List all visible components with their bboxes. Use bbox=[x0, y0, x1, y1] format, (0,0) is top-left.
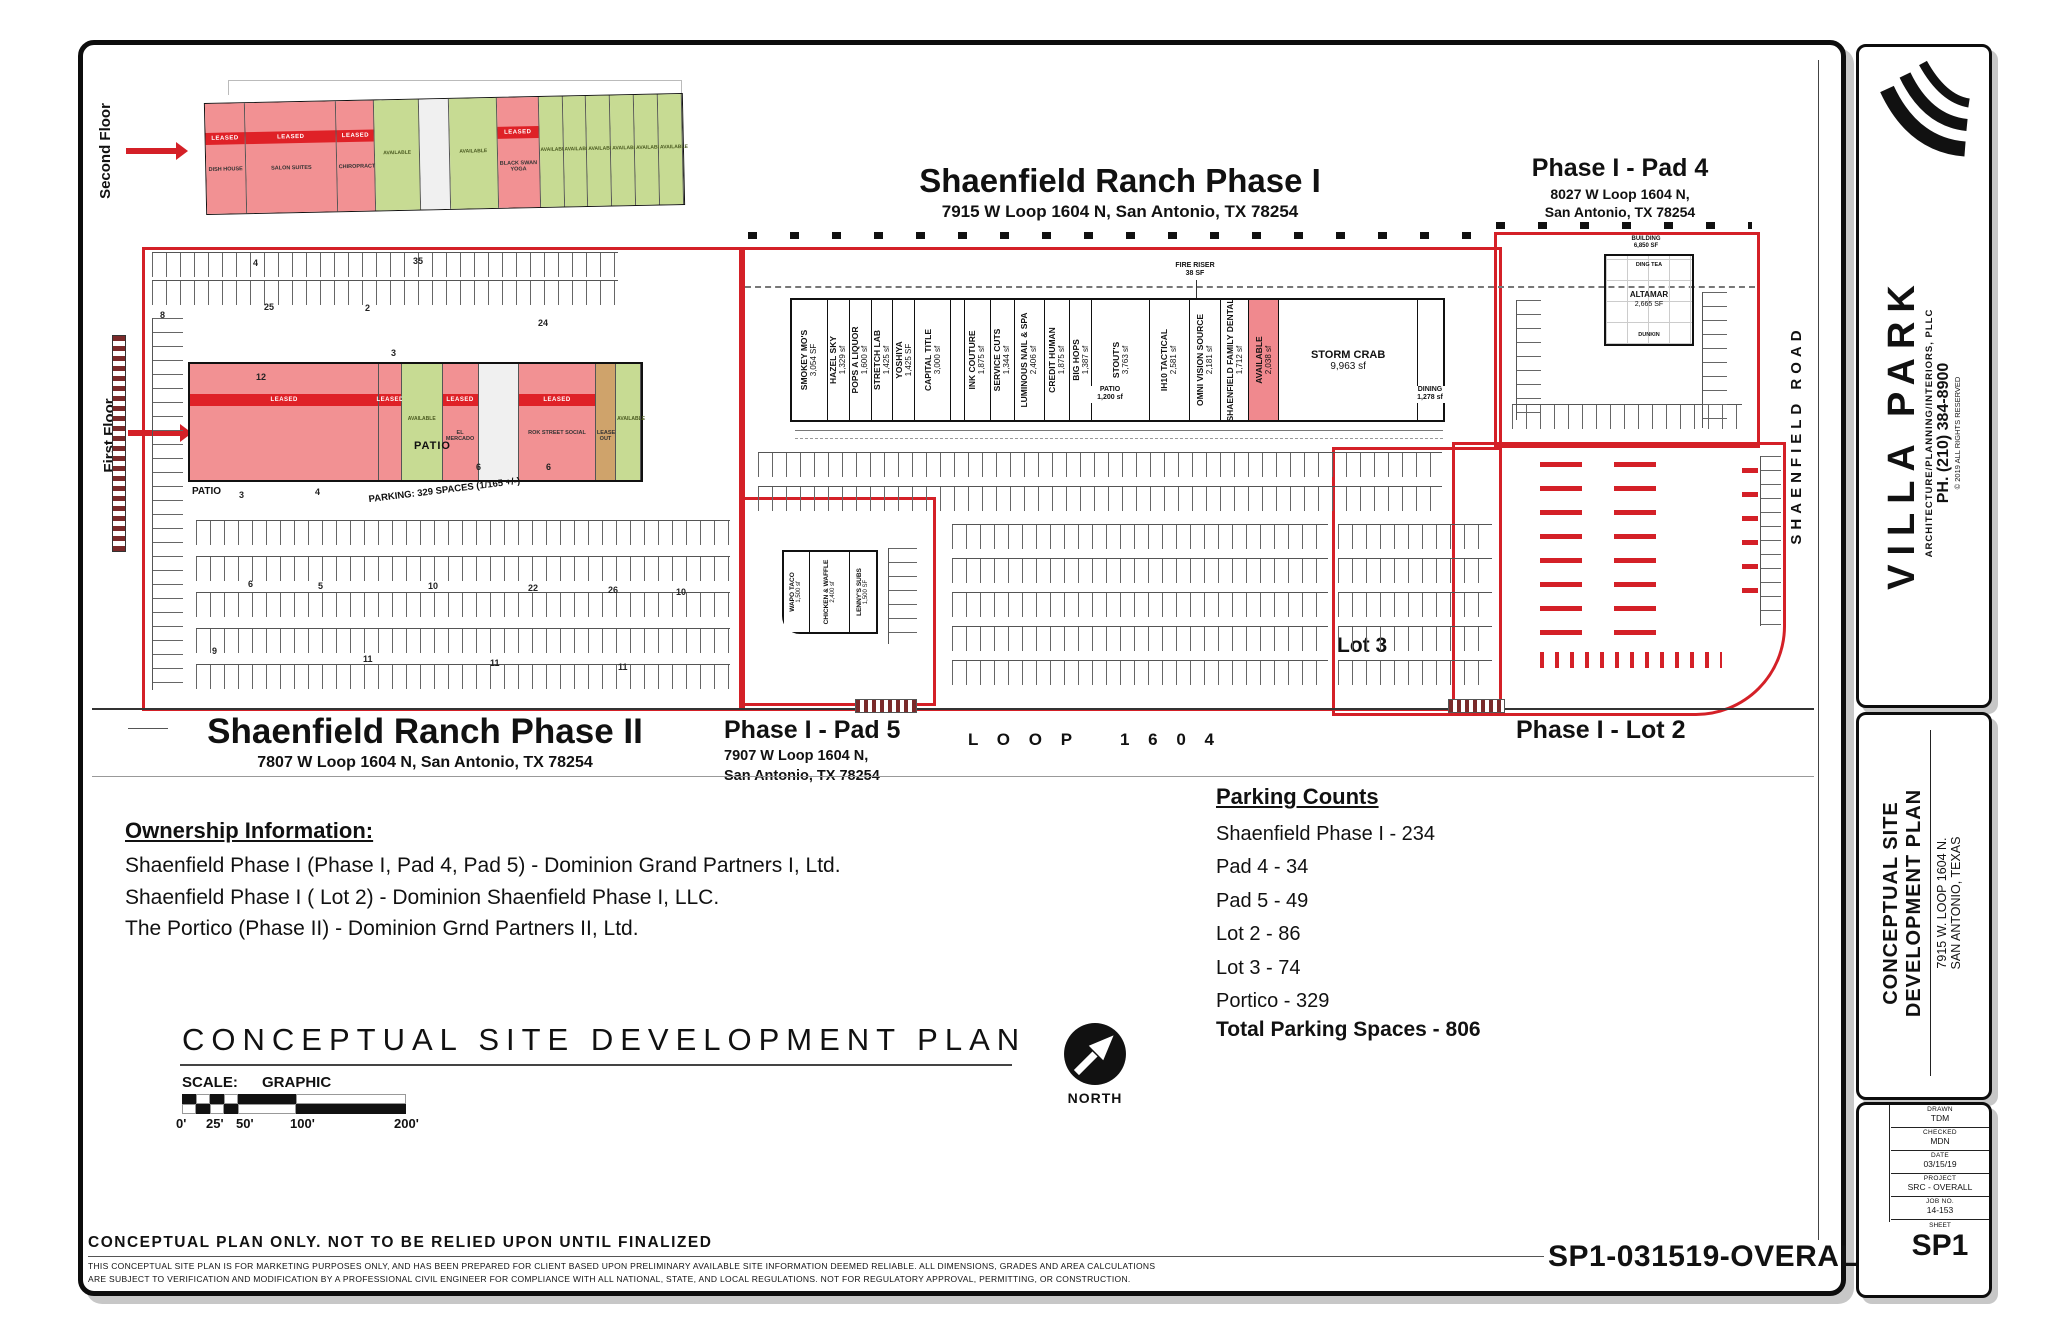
unit-name: CHIROPRACTOR bbox=[339, 164, 374, 170]
tenant-unit: WAPO TACO1,500 sf bbox=[784, 552, 810, 632]
sheet-label: SHEET bbox=[1891, 1220, 1989, 1229]
pad4-tick-row bbox=[1496, 222, 1752, 229]
tenant-sf: 1,425 SF bbox=[904, 341, 913, 378]
unit-name: AVAILABLE bbox=[588, 145, 609, 151]
parking-row bbox=[952, 626, 1328, 651]
tenant-unit: HAZEL SKY1,329 sf bbox=[828, 300, 850, 420]
tenant-unit: POPS A LIQUOR1,600 sf bbox=[850, 300, 872, 420]
tenant-sf: 1,500 sf bbox=[797, 572, 804, 612]
unit-name: SALON SUITES bbox=[247, 165, 336, 173]
project-divider bbox=[1930, 730, 1931, 1076]
parking-row-number: 5 bbox=[318, 581, 323, 591]
leased-unit: LEASEDSALON SUITES bbox=[245, 101, 339, 213]
parking-row bbox=[1338, 592, 1492, 617]
north-label: NORTH bbox=[1053, 1090, 1137, 1106]
tenant-unit: IH10 TACTICAL2,581 sf bbox=[1150, 300, 1190, 420]
parking-row-number: 3 bbox=[391, 348, 396, 358]
parking-row bbox=[1338, 626, 1492, 651]
parking-row-number: 6 bbox=[476, 462, 481, 472]
phase2-heading: Shaenfield Ranch Phase II bbox=[165, 712, 685, 752]
parking-column bbox=[1760, 456, 1781, 626]
tenant-unit-label: AVAILABLE2,038 sf bbox=[1254, 336, 1272, 383]
plan-title-underline bbox=[180, 1064, 1012, 1066]
unit-name: AVAILABLE bbox=[451, 147, 496, 154]
tenant-name: AVAILABLE bbox=[1254, 336, 1264, 383]
tenant-unit-label: LENNY'S SUBS1,500 SF bbox=[856, 568, 870, 616]
info-row: DRAWNTDM bbox=[1891, 1105, 1989, 1128]
tenant-name: CAPITAL TITLE bbox=[923, 329, 933, 391]
pad4-address-2: San Antonio, TX 78254 bbox=[1480, 204, 1760, 220]
firm-name: VILLA PARK bbox=[1881, 167, 1924, 699]
unit-name: AVAILABLE bbox=[612, 145, 633, 151]
tenant-unit-label: SERVICE CUTS1,344 sf bbox=[993, 329, 1011, 392]
fire-riser-label: FIRE RISER38 SF bbox=[1150, 262, 1240, 279]
second-floor-arrow bbox=[126, 148, 176, 154]
info-row: CHECKEDMDN bbox=[1891, 1128, 1989, 1151]
tenant-sf: 1,425 sf bbox=[882, 330, 891, 390]
tenant-unit: SERVICE CUTS1,344 sf bbox=[991, 300, 1015, 420]
parking-row-number: 4 bbox=[315, 487, 320, 497]
pad4-building-outline: DING TEA ALTAMAR 2,665 SF DUNKIN bbox=[1604, 254, 1694, 346]
crosswalk-2 bbox=[1448, 699, 1505, 713]
pad4-unit-top: DING TEA bbox=[1606, 262, 1692, 268]
project-title-2: DEVELOPMENT PLAN bbox=[1903, 789, 1926, 1017]
parking-row bbox=[196, 556, 730, 581]
parking-row bbox=[196, 592, 730, 617]
parking-counts-title: Parking Counts bbox=[1216, 784, 1379, 810]
site-plan-sheet: LEASEDDISH HOUSELEASEDSALON SUITESLEASED… bbox=[0, 0, 2048, 1325]
info-row-value: TDM bbox=[1891, 1113, 1989, 1123]
loop-road-near-edge bbox=[92, 708, 1814, 710]
street-median-hatch bbox=[112, 335, 126, 552]
leased-band: LEASED bbox=[443, 394, 478, 406]
tenant-unit-label: SMOKEY MO'S3,054 SF bbox=[800, 330, 818, 390]
info-row-label: CHECKED bbox=[1891, 1129, 1989, 1136]
tenant-name: STORM CRAB bbox=[1311, 349, 1385, 361]
second-floor-plan: LEASEDDISH HOUSELEASEDSALON SUITESLEASED… bbox=[204, 93, 685, 215]
leased-unit: LEASEDDISH HOUSE bbox=[205, 103, 247, 214]
parking-row-number: 26 bbox=[608, 585, 618, 595]
red-parking-marks bbox=[1742, 468, 1758, 600]
info-row-label: PROJECT bbox=[1891, 1175, 1989, 1182]
firm-copyright: © 2019 ALL RIGHTS RESERVED bbox=[1953, 167, 1962, 699]
loop-road-far-edge bbox=[92, 776, 1814, 777]
tenant-sf: 1,500 SF bbox=[863, 568, 870, 616]
parking-row-number: 2 bbox=[365, 303, 370, 313]
available-unit: AVAILABLE bbox=[586, 96, 612, 206]
leased-band: LEASED bbox=[205, 132, 244, 145]
tenant-unit-label: CREDIT HUMAN1,875 sf bbox=[1048, 327, 1066, 393]
available-unit: AVAILABLE bbox=[402, 364, 443, 480]
leased-band: LEASED bbox=[337, 129, 374, 142]
phase2-leader-line bbox=[128, 728, 168, 729]
info-row-label: DRAWN bbox=[1891, 1106, 1989, 1113]
info-row-label: DATE bbox=[1891, 1152, 1989, 1159]
parking-row-number: 6 bbox=[248, 579, 253, 589]
parking-row bbox=[952, 524, 1328, 549]
tenant-unit-label: OMNI VISION SOURCE2,181 sf bbox=[1196, 314, 1214, 406]
tenant-sf: 1,712 sf bbox=[1235, 298, 1244, 421]
tenant-unit: SHAENFIELD FAMILY DENTAL1,712 sf bbox=[1221, 300, 1249, 420]
scale-type: GRAPHIC bbox=[262, 1074, 331, 1091]
tenant-sf: 2,406 sf bbox=[1029, 312, 1038, 407]
parking-row-number: 4 bbox=[253, 258, 258, 268]
parking-row-number: 11 bbox=[618, 662, 628, 672]
parking-row-number: 11 bbox=[363, 654, 373, 664]
parking-row bbox=[758, 486, 1442, 511]
info-row-value: 03/15/19 bbox=[1891, 1159, 1989, 1169]
phase1-building: SMOKEY MO'S3,054 SFHAZEL SKY1,329 sfPOPS… bbox=[790, 298, 1445, 422]
parking-row-number: 25 bbox=[264, 302, 274, 312]
pad5-heading: Phase I - Pad 5 bbox=[724, 716, 900, 745]
tan-unit: LEASE OUT bbox=[596, 364, 616, 480]
parking-row bbox=[1338, 524, 1492, 549]
tenant-sf: 2,581 sf bbox=[1170, 329, 1179, 391]
scale-label: SCALE: bbox=[182, 1074, 238, 1091]
pad5-parking-column bbox=[888, 548, 917, 644]
leased-unit: LEASEDEL MERCADO bbox=[443, 364, 479, 480]
unit-name: BLACK SWAN YOGA bbox=[499, 161, 538, 173]
core-unit bbox=[419, 99, 451, 210]
available-unit: AVAILABLE bbox=[562, 96, 588, 206]
sheet-number: SP1 bbox=[1891, 1229, 1989, 1263]
info-row-label: JOB NO. bbox=[1891, 1198, 1989, 1205]
parking-row-number: 24 bbox=[538, 318, 548, 328]
tenant-unit-label: YOSHIYA1,425 SF bbox=[895, 341, 913, 378]
parking-row bbox=[196, 664, 730, 689]
pad5-building: WAPO TACO1,500 sfCHICKEN & WAFFLE2,400 s… bbox=[782, 550, 878, 634]
leased-band: LEASED bbox=[497, 126, 538, 139]
project-title-1: CONCEPTUAL SITE bbox=[1880, 801, 1903, 1005]
tenant-unit: OMNI VISION SOURCE2,181 sf bbox=[1190, 300, 1222, 420]
available-unit: AVAILABLE bbox=[610, 95, 636, 205]
tenant-name: SHAENFIELD FAMILY DENTAL bbox=[1226, 298, 1236, 421]
info-row-value: 14-153 bbox=[1891, 1205, 1989, 1215]
parking-row-number: 3 bbox=[239, 490, 244, 500]
sheet-stamp: SP1-031519-OVERALL bbox=[1548, 1240, 1877, 1274]
scale-tick-label: 100' bbox=[290, 1116, 315, 1131]
villa-park-logo-icon bbox=[1861, 47, 1981, 167]
scale-bar bbox=[182, 1094, 408, 1114]
leased-band: LEASED bbox=[519, 394, 595, 406]
ownership-line: The Portico (Phase II) - Dominion Grnd P… bbox=[125, 913, 1025, 945]
tenant-name: LENNY'S SUBS bbox=[856, 568, 863, 616]
phase1-patio-label: PATIO1,200 sf bbox=[1082, 386, 1138, 403]
leased-unit: LEASED bbox=[190, 364, 379, 480]
disclaimer-title: CONCEPTUAL PLAN ONLY. NOT TO BE RELIED U… bbox=[88, 1234, 712, 1252]
crosswalk-1 bbox=[855, 699, 917, 713]
fire-riser-leader bbox=[1196, 280, 1197, 298]
dining-label: DINING1,278 sf bbox=[1400, 386, 1460, 403]
scale-bar-top-row bbox=[182, 1094, 408, 1104]
tenant-unit: STRETCH LAB1,425 sf bbox=[872, 300, 894, 420]
tenant-unit-label: STRETCH LAB1,425 sf bbox=[873, 330, 891, 390]
parking-row bbox=[196, 520, 730, 545]
red-parking-marks bbox=[1540, 462, 1582, 650]
unit-name: DISH HOUSE bbox=[207, 167, 244, 174]
shaenfield-road-edge bbox=[1818, 60, 1819, 1240]
tenant-unit-label: IH10 TACTICAL2,581 sf bbox=[1160, 329, 1178, 391]
unit-name: ROK STREET SOCIAL bbox=[520, 431, 594, 437]
tenant-name: CREDIT HUMAN bbox=[1048, 327, 1058, 393]
info-row-value: MDN bbox=[1891, 1136, 1989, 1146]
pad5-address-1: 7907 W Loop 1604 N, bbox=[724, 748, 868, 764]
tenant-name: YOSHIYA bbox=[895, 341, 905, 378]
leased-band: LEASED bbox=[379, 394, 401, 406]
phase1-front-dashed bbox=[795, 438, 1443, 439]
unit-name: AVAILABLE bbox=[540, 146, 561, 152]
info-row-value: SRC - OVERALL bbox=[1891, 1182, 1989, 1192]
phase2-address: 7807 W Loop 1604 N, San Antonio, TX 7825… bbox=[165, 754, 685, 772]
parking-count-line: Portico - 329 bbox=[1216, 985, 1636, 1018]
parking-row-number: 35 bbox=[413, 256, 423, 266]
titleblock-project-content: CONCEPTUAL SITE DEVELOPMENT PLAN 7915 W.… bbox=[1859, 715, 1983, 1091]
parking-count-line: Shaenfield Phase I - 234 bbox=[1216, 818, 1636, 851]
pad4-heading: Phase I - Pad 4 bbox=[1480, 154, 1760, 183]
parking-row-number: 12 bbox=[256, 372, 266, 382]
tenant-sf: 1,387 sf bbox=[1081, 339, 1090, 381]
phase2-patio-label: PATIO bbox=[414, 440, 451, 452]
project-address-2: SAN ANTONIO, TEXAS bbox=[1949, 837, 1963, 970]
tenant-unit: CAPITAL TITLE3,000 sf bbox=[915, 300, 951, 420]
parking-row-number: 9 bbox=[212, 646, 217, 656]
tenant-unit: INK COUTURE1,875 sf bbox=[965, 300, 991, 420]
tenant-unit: SMOKEY MO'S3,054 SF bbox=[792, 300, 828, 420]
ownership-lines: Shaenfield Phase I (Phase I, Pad 4, Pad … bbox=[125, 850, 1025, 945]
firm-sub: ARCHITECTURE/PLANNING/INTERIORS, PLLC bbox=[1924, 167, 1935, 699]
tenant-sf: 1,329 sf bbox=[839, 336, 848, 384]
available-unit: AVAILABLE bbox=[616, 364, 641, 480]
tenant-sf: 2,181 sf bbox=[1205, 314, 1214, 406]
titleblock-firm-content: VILLA PARK ARCHITECTURE/PLANNING/INTERIO… bbox=[1859, 47, 1983, 699]
pad4-unit-bottom: DUNKIN bbox=[1606, 332, 1692, 338]
tenant-unit-label: CAPITAL TITLE3,000 sf bbox=[923, 329, 941, 391]
parking-row bbox=[758, 452, 1442, 477]
pad4-building-label: BUILDING6,850 SF bbox=[1596, 236, 1696, 250]
info-row: JOB NO.14-153 bbox=[1891, 1197, 1989, 1220]
ownership-line: Shaenfield Phase I ( Lot 2) - Dominion S… bbox=[125, 882, 1025, 914]
tenant-sf: 1,344 sf bbox=[1003, 329, 1012, 392]
parking-row bbox=[952, 558, 1328, 583]
scale-tick-label: 0' bbox=[176, 1116, 186, 1131]
phase1-address: 7915 W Loop 1604 N, San Antonio, TX 7825… bbox=[820, 202, 1420, 222]
scale-tick-label: 200' bbox=[394, 1116, 419, 1131]
tenant-name: CHICKEN & WAFFLE bbox=[823, 560, 830, 625]
scale-tick-label: 50' bbox=[236, 1116, 254, 1131]
parking-count-line: Pad 5 - 49 bbox=[1216, 885, 1636, 918]
tenant-unit-label: SHAENFIELD FAMILY DENTAL1,712 sf bbox=[1226, 298, 1244, 421]
available-unit: AVAILABLE bbox=[374, 100, 421, 211]
phase1-front-walk bbox=[795, 430, 1443, 431]
scale-bar-bottom-row bbox=[182, 1104, 408, 1114]
parking-row-number: 22 bbox=[528, 583, 538, 593]
tenant-unit-label: POPS A LIQUOR1,600 sf bbox=[851, 327, 869, 394]
tenant-unit: CHICKEN & WAFFLE2,400 sf bbox=[810, 552, 850, 632]
disclaimer-line-2: ARE SUBJECT TO VERIFICATION AND MODIFICA… bbox=[88, 1274, 1548, 1284]
red-parking-marks-row bbox=[1540, 652, 1722, 668]
parking-row-number: 6 bbox=[546, 462, 551, 472]
leased-band: LEASED bbox=[245, 130, 336, 144]
tenant-unit-label: STORM CRAB9,963 sf bbox=[1279, 300, 1417, 420]
available-unit: AVAILABLE bbox=[449, 98, 499, 209]
sheet-row: SHEET SP1 bbox=[1891, 1220, 1989, 1263]
tenant-unit-label: STOUT'S3,763 sf bbox=[1111, 342, 1129, 378]
available-unit: AVAILABLE bbox=[634, 95, 660, 205]
info-row: DATE03/15/19 bbox=[1891, 1151, 1989, 1174]
disclaimer-line-1: THIS CONCEPTUAL SITE PLAN IS FOR MARKETI… bbox=[88, 1261, 1548, 1271]
unit-name: AVAILABLE bbox=[564, 146, 585, 152]
leased-band: LEASED bbox=[190, 394, 378, 406]
unit-name: AVAILABLE bbox=[660, 144, 681, 150]
ownership-title: Ownership Information: bbox=[125, 818, 373, 844]
tenant-unit-label: HAZEL SKY1,329 sf bbox=[829, 336, 847, 384]
property-tick-row bbox=[748, 232, 1492, 239]
tenant-sf: 9,963 sf bbox=[1330, 361, 1366, 372]
tenant-sf: 1,600 sf bbox=[860, 327, 869, 394]
titleblock-info-box: DRAWNTDMCHECKEDMDNDATE03/15/19PROJECTSRC… bbox=[1856, 1102, 1992, 1298]
phase1-heading: Shaenfield Ranch Phase I bbox=[820, 162, 1420, 200]
available-unit: AVAILABLE bbox=[538, 97, 564, 207]
tenant-unit-label: BIG HOPS1,387 sf bbox=[1072, 339, 1090, 381]
parking-row bbox=[952, 660, 1328, 685]
info-box-spine bbox=[1889, 1105, 1890, 1222]
info-row: PROJECTSRC - OVERALL bbox=[1891, 1174, 1989, 1197]
second-floor-label: Second Floor bbox=[97, 67, 119, 235]
scale-tick-label: 25' bbox=[206, 1116, 224, 1131]
parking-counts-lines: Shaenfield Phase I - 234Pad 4 - 34Pad 5 … bbox=[1216, 818, 1636, 1018]
tenant-unit: YOSHIYA1,425 SF bbox=[893, 300, 915, 420]
parking-column bbox=[1516, 300, 1541, 420]
parking-row bbox=[1338, 558, 1492, 583]
tenant-unit-label: CHICKEN & WAFFLE2,400 sf bbox=[823, 560, 837, 625]
tenant-sf: 1,875 sf bbox=[978, 330, 987, 389]
parking-counts-total: Total Parking Spaces - 806 bbox=[1216, 1018, 1481, 1042]
parking-row-number: 10 bbox=[428, 581, 438, 591]
parking-column bbox=[1702, 292, 1727, 428]
tenant-unit-label: INK COUTURE1,875 sf bbox=[968, 330, 986, 389]
tenant-unit: CREDIT HUMAN1,875 sf bbox=[1045, 300, 1071, 420]
loop-label-word: L O O P bbox=[968, 730, 1079, 750]
pad4-unit-sf: 2,665 SF bbox=[1606, 301, 1692, 308]
pad4-address-1: 8027 W Loop 1604 N, bbox=[1480, 186, 1760, 202]
leased-unit: LEASEDROK STREET SOCIAL bbox=[519, 364, 596, 480]
plan-title: CONCEPTUAL SITE DEVELOPMENT PLAN bbox=[182, 1022, 1026, 1058]
unit-name: AVAILABLE bbox=[403, 416, 441, 422]
parking-row-number: 8 bbox=[160, 310, 165, 320]
tenant-unit: AVAILABLE2,038 sf bbox=[1249, 300, 1279, 420]
tenant-unit: LUMINOUS NAIL & SPA2,406 sf bbox=[1015, 300, 1045, 420]
second-floor-roofline bbox=[228, 80, 682, 95]
parking-count-line: Lot 2 - 86 bbox=[1216, 918, 1636, 951]
parking-count-line: Lot 3 - 74 bbox=[1216, 952, 1636, 985]
core-unit bbox=[479, 364, 520, 480]
lot2-label: Phase I - Lot 2 bbox=[1516, 716, 1685, 745]
tenant-sf: 1,875 sf bbox=[1057, 327, 1066, 393]
disclaimer-underline bbox=[88, 1256, 1544, 1257]
stair-core bbox=[951, 300, 965, 420]
available-unit: AVAILABLE bbox=[658, 94, 684, 204]
unit-name: AVAILABLE bbox=[636, 144, 657, 150]
parking-row bbox=[1338, 660, 1492, 685]
parking-row bbox=[952, 592, 1328, 617]
parking-row-number: 11 bbox=[490, 658, 500, 668]
tenant-sf: 3,763 sf bbox=[1121, 342, 1130, 378]
ownership-line: Shaenfield Phase I (Phase I, Pad 4, Pad … bbox=[125, 850, 1025, 882]
tenant-unit-label: LUMINOUS NAIL & SPA2,406 sf bbox=[1020, 312, 1038, 407]
red-parking-marks bbox=[1614, 462, 1656, 650]
unit-name: AVAILABLE bbox=[617, 416, 639, 422]
unit-name: LEASE OUT bbox=[597, 431, 614, 443]
shaenfield-road-label: SHAENFIELD ROAD bbox=[1788, 285, 1812, 585]
north-arrow-icon bbox=[1063, 1022, 1127, 1086]
leased-unit: LEASED bbox=[379, 364, 402, 480]
pad4-unit-name: ALTAMAR bbox=[1606, 290, 1692, 299]
parking-count-line: Pad 4 - 34 bbox=[1216, 851, 1636, 884]
unit-name: AVAILABLE bbox=[376, 149, 418, 156]
tenant-unit: STORM CRAB9,963 sf bbox=[1279, 300, 1418, 420]
tenant-name: STOUT'S bbox=[1111, 342, 1121, 378]
tenant-sf: 2,038 sf bbox=[1264, 336, 1273, 383]
tenant-unit-label: WAPO TACO1,500 sf bbox=[789, 572, 803, 612]
parking-row bbox=[196, 628, 730, 653]
firm-phone: PH. (210) 384-8900 bbox=[1935, 167, 1953, 699]
phase2-patio-label-2: PATIO bbox=[192, 486, 221, 497]
tenant-unit: LENNY'S SUBS1,500 SF bbox=[850, 552, 876, 632]
parking-row bbox=[152, 280, 618, 305]
tenant-sf: 3,054 SF bbox=[810, 330, 819, 390]
tenant-sf: 3,000 sf bbox=[933, 329, 942, 391]
parking-column bbox=[152, 318, 183, 690]
leased-unit: LEASEDBLACK SWAN YOGA bbox=[497, 97, 541, 208]
parking-row bbox=[152, 252, 618, 277]
tenant-name: BIG HOPS bbox=[1072, 339, 1082, 381]
tenant-sf: 2,400 sf bbox=[830, 560, 837, 625]
project-address-1: 7915 W. LOOP 1604 N. bbox=[1935, 837, 1949, 968]
leased-unit: LEASEDCHIROPRACTOR bbox=[336, 100, 376, 211]
loop-label-number: 1 6 0 4 bbox=[1120, 730, 1221, 750]
parking-row-number: 10 bbox=[676, 587, 686, 597]
info-box-rows: DRAWNTDMCHECKEDMDNDATE03/15/19PROJECTSRC… bbox=[1891, 1105, 1989, 1220]
